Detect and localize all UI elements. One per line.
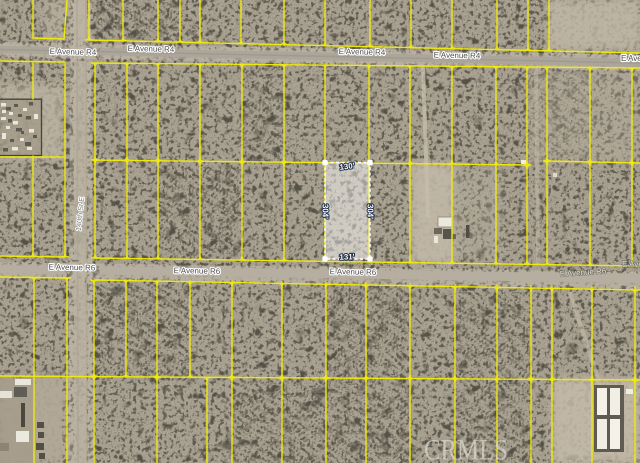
svg-text:E Avenue R6: E Avenue R6	[330, 267, 377, 277]
svg-text:E Avenue R6: E Avenue R6	[49, 263, 96, 273]
svg-text:E Avenue R4: E Avenue R4	[128, 44, 175, 54]
svg-text:CRMLS: CRMLS	[424, 434, 508, 463]
svg-text:E Avenue R6: E Avenue R6	[622, 260, 640, 269]
svg-text:304': 304'	[366, 204, 375, 219]
svg-text:304': 304'	[321, 204, 330, 219]
svg-text:E Avenue R4: E Avenue R4	[339, 47, 386, 57]
svg-text:131': 131'	[339, 252, 354, 262]
svg-text:130': 130'	[339, 161, 355, 172]
svg-text:E Avenue R4: E Avenue R4	[434, 51, 481, 61]
svg-text:E Avenue R4: E Avenue R4	[50, 47, 97, 57]
svg-text:E Avenue R6: E Avenue R6	[174, 266, 221, 276]
svg-text:E Avenue R4: E Avenue R4	[621, 54, 640, 63]
